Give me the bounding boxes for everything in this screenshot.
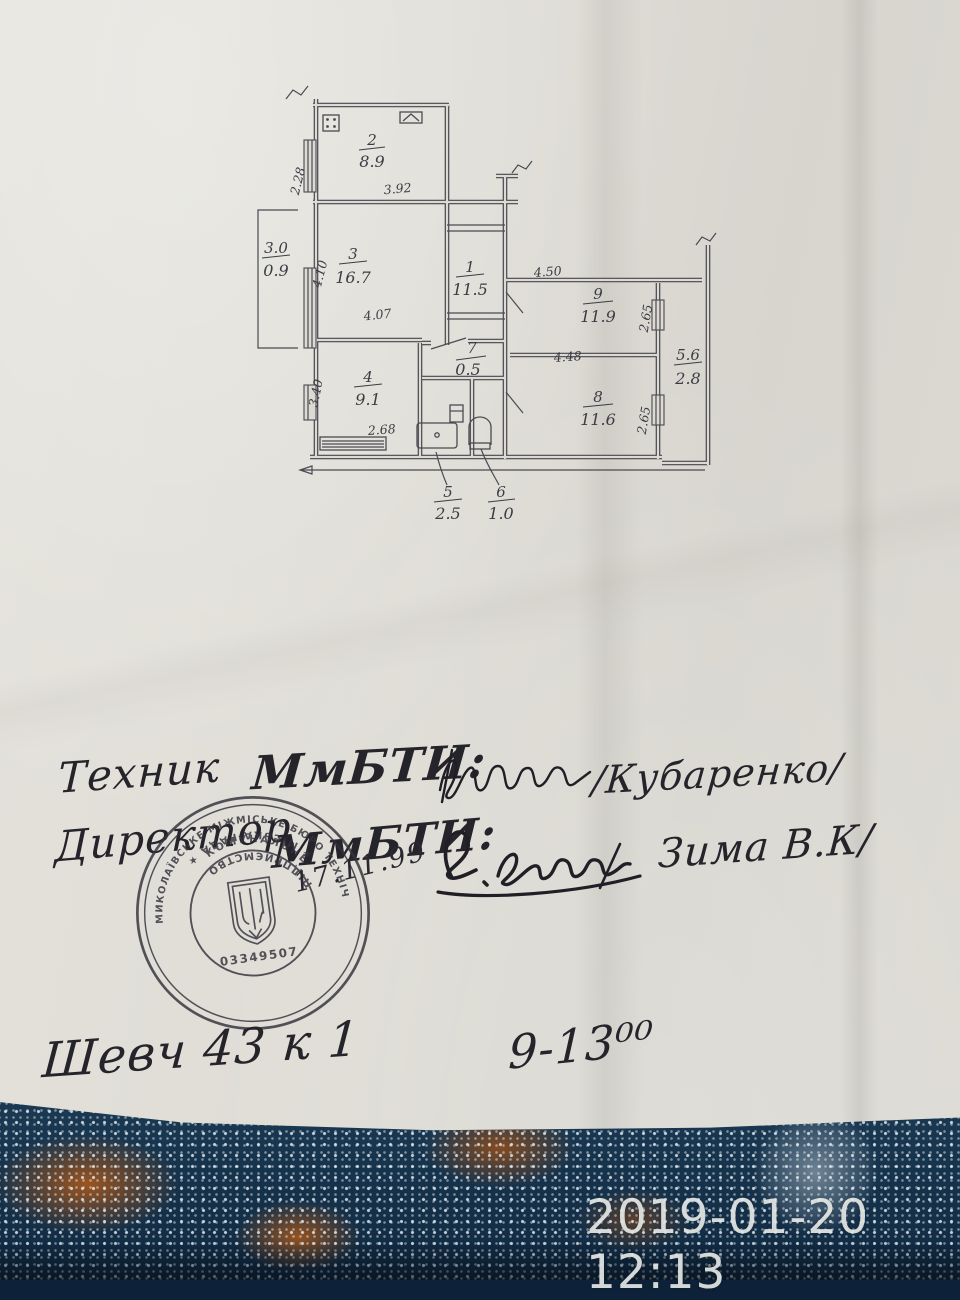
svg-text:4: 4 xyxy=(362,368,373,386)
leader-line xyxy=(481,449,499,485)
handwritten-hours: 9-13⁰⁰ xyxy=(507,1010,654,1080)
dim-room8-right: 2.65 xyxy=(634,405,654,436)
svg-text:2.5: 2.5 xyxy=(434,504,460,523)
svg-text:5: 5 xyxy=(443,483,453,501)
balcony-label-left: 3.0 0.9 xyxy=(262,239,290,280)
svg-text:8: 8 xyxy=(593,388,603,406)
vent-icon xyxy=(400,112,422,123)
room-label-2: 2 8.9 xyxy=(359,131,385,171)
dim-room2-bottom: 3.92 xyxy=(383,180,412,197)
dim-room4-left: 3.40 xyxy=(305,378,325,408)
handwritten-surname-kubarenko: /Кубаренко/ xyxy=(590,745,845,802)
svg-text:2: 2 xyxy=(366,131,377,149)
technician-signature xyxy=(432,738,602,816)
handwritten-address: Шевч 43 к 1 xyxy=(40,1011,361,1090)
svg-text:11.5: 11.5 xyxy=(452,280,488,299)
break-mark-icon xyxy=(696,233,716,245)
svg-text:3: 3 xyxy=(348,245,358,263)
svg-text:1.0: 1.0 xyxy=(488,504,513,523)
svg-text:0.5: 0.5 xyxy=(455,360,480,379)
trident-emblem-icon xyxy=(228,877,278,947)
svg-text:1: 1 xyxy=(465,258,475,276)
svg-text:11.9: 11.9 xyxy=(580,307,616,326)
director-signature xyxy=(424,812,656,912)
handwritten-surname-zyma: Зима В.К/ xyxy=(657,816,876,877)
room-label-1: 1 11.5 xyxy=(452,258,488,299)
room-label-3: 3 16.7 xyxy=(335,245,371,287)
dim-room9-bottom: 4.48 xyxy=(552,348,582,365)
dim-room3-left: 4.10 xyxy=(309,259,331,291)
door-slash xyxy=(506,392,523,413)
svg-text:6: 6 xyxy=(496,483,506,501)
room-label-4: 4 9.1 xyxy=(354,368,382,409)
floor-plan: 2 8.9 3 16.7 1 11.5 9 11.9 4 9.1 7 0.5 xyxy=(250,85,720,530)
break-mark-icon xyxy=(286,86,308,99)
break-mark-icon xyxy=(512,161,532,173)
room-label-9: 9 11.9 xyxy=(580,285,616,326)
stove-icon xyxy=(323,115,339,131)
door-slash xyxy=(506,292,523,313)
svg-text:8.9: 8.9 xyxy=(359,152,384,171)
room-label-6: 6 1.0 xyxy=(488,483,515,523)
svg-text:16.7: 16.7 xyxy=(335,268,371,287)
document-paper: 2 8.9 3 16.7 1 11.5 9 11.9 4 9.1 7 0.5 xyxy=(0,0,960,1280)
dim-room9-top: 4.50 xyxy=(532,263,562,280)
sink-icon xyxy=(450,405,463,422)
balcony-label-right: 5.6 2.8 xyxy=(674,346,702,388)
room-label-8: 8 11.6 xyxy=(580,388,616,429)
dim-room4-bottom: 2.68 xyxy=(366,421,396,438)
svg-text:5.6: 5.6 xyxy=(676,346,700,364)
bathtub-icon xyxy=(417,423,457,448)
svg-text:7: 7 xyxy=(467,339,477,357)
svg-text:9: 9 xyxy=(593,285,603,303)
svg-text:9.1: 9.1 xyxy=(355,390,380,409)
svg-text:2.8: 2.8 xyxy=(674,369,700,388)
radiator-icon xyxy=(320,437,386,450)
svg-text:11.6: 11.6 xyxy=(580,410,616,429)
dim-room3-bottom: 4.07 xyxy=(362,306,392,324)
room-label-7: 7 0.5 xyxy=(455,339,486,379)
svg-text:3.0: 3.0 xyxy=(264,239,288,257)
camera-timestamp: 2019-01-20 12:13 xyxy=(586,1190,960,1300)
room-label-5: 5 2.5 xyxy=(434,483,462,523)
svg-text:0.9: 0.9 xyxy=(263,261,288,280)
